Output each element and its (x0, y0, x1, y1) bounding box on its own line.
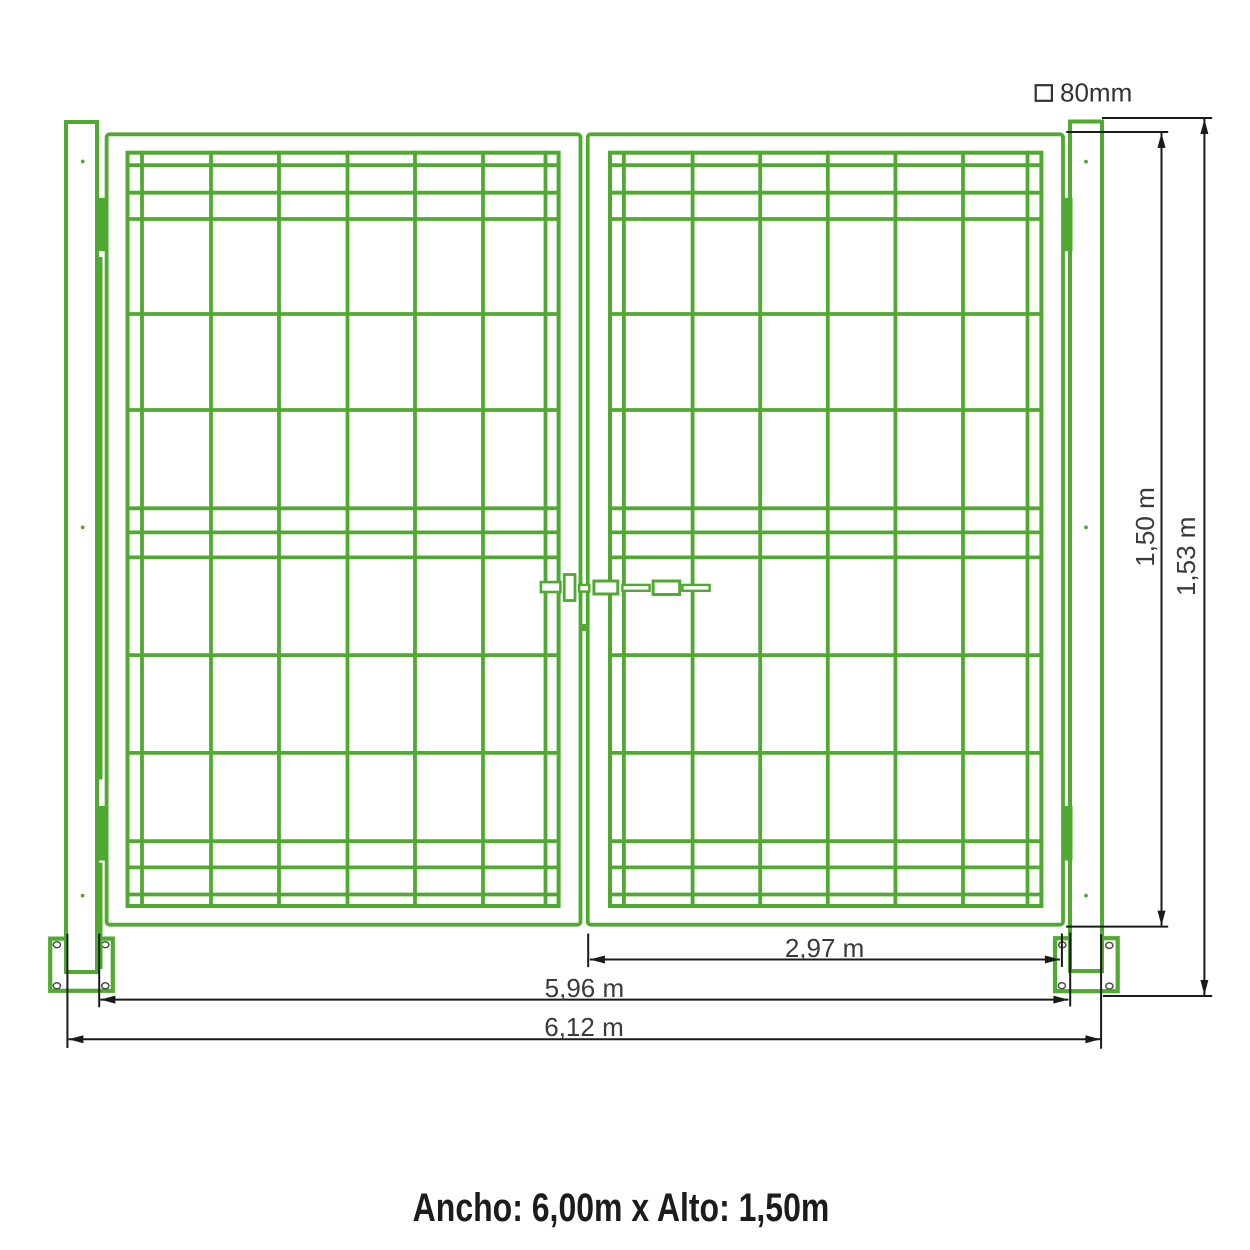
svg-text:6,12 m: 6,12 m (544, 1012, 624, 1042)
svg-text:1,50 m: 1,50 m (1130, 487, 1160, 567)
svg-text:1,53 m: 1,53 m (1171, 517, 1201, 597)
svg-text:80mm: 80mm (1060, 78, 1132, 108)
svg-text:5,96 m: 5,96 m (545, 973, 625, 1003)
svg-text:Ancho: 6,00m x Alto: 1,50m: Ancho: 6,00m x Alto: 1,50m (413, 1184, 830, 1229)
svg-text:2,97 m: 2,97 m (785, 933, 865, 963)
